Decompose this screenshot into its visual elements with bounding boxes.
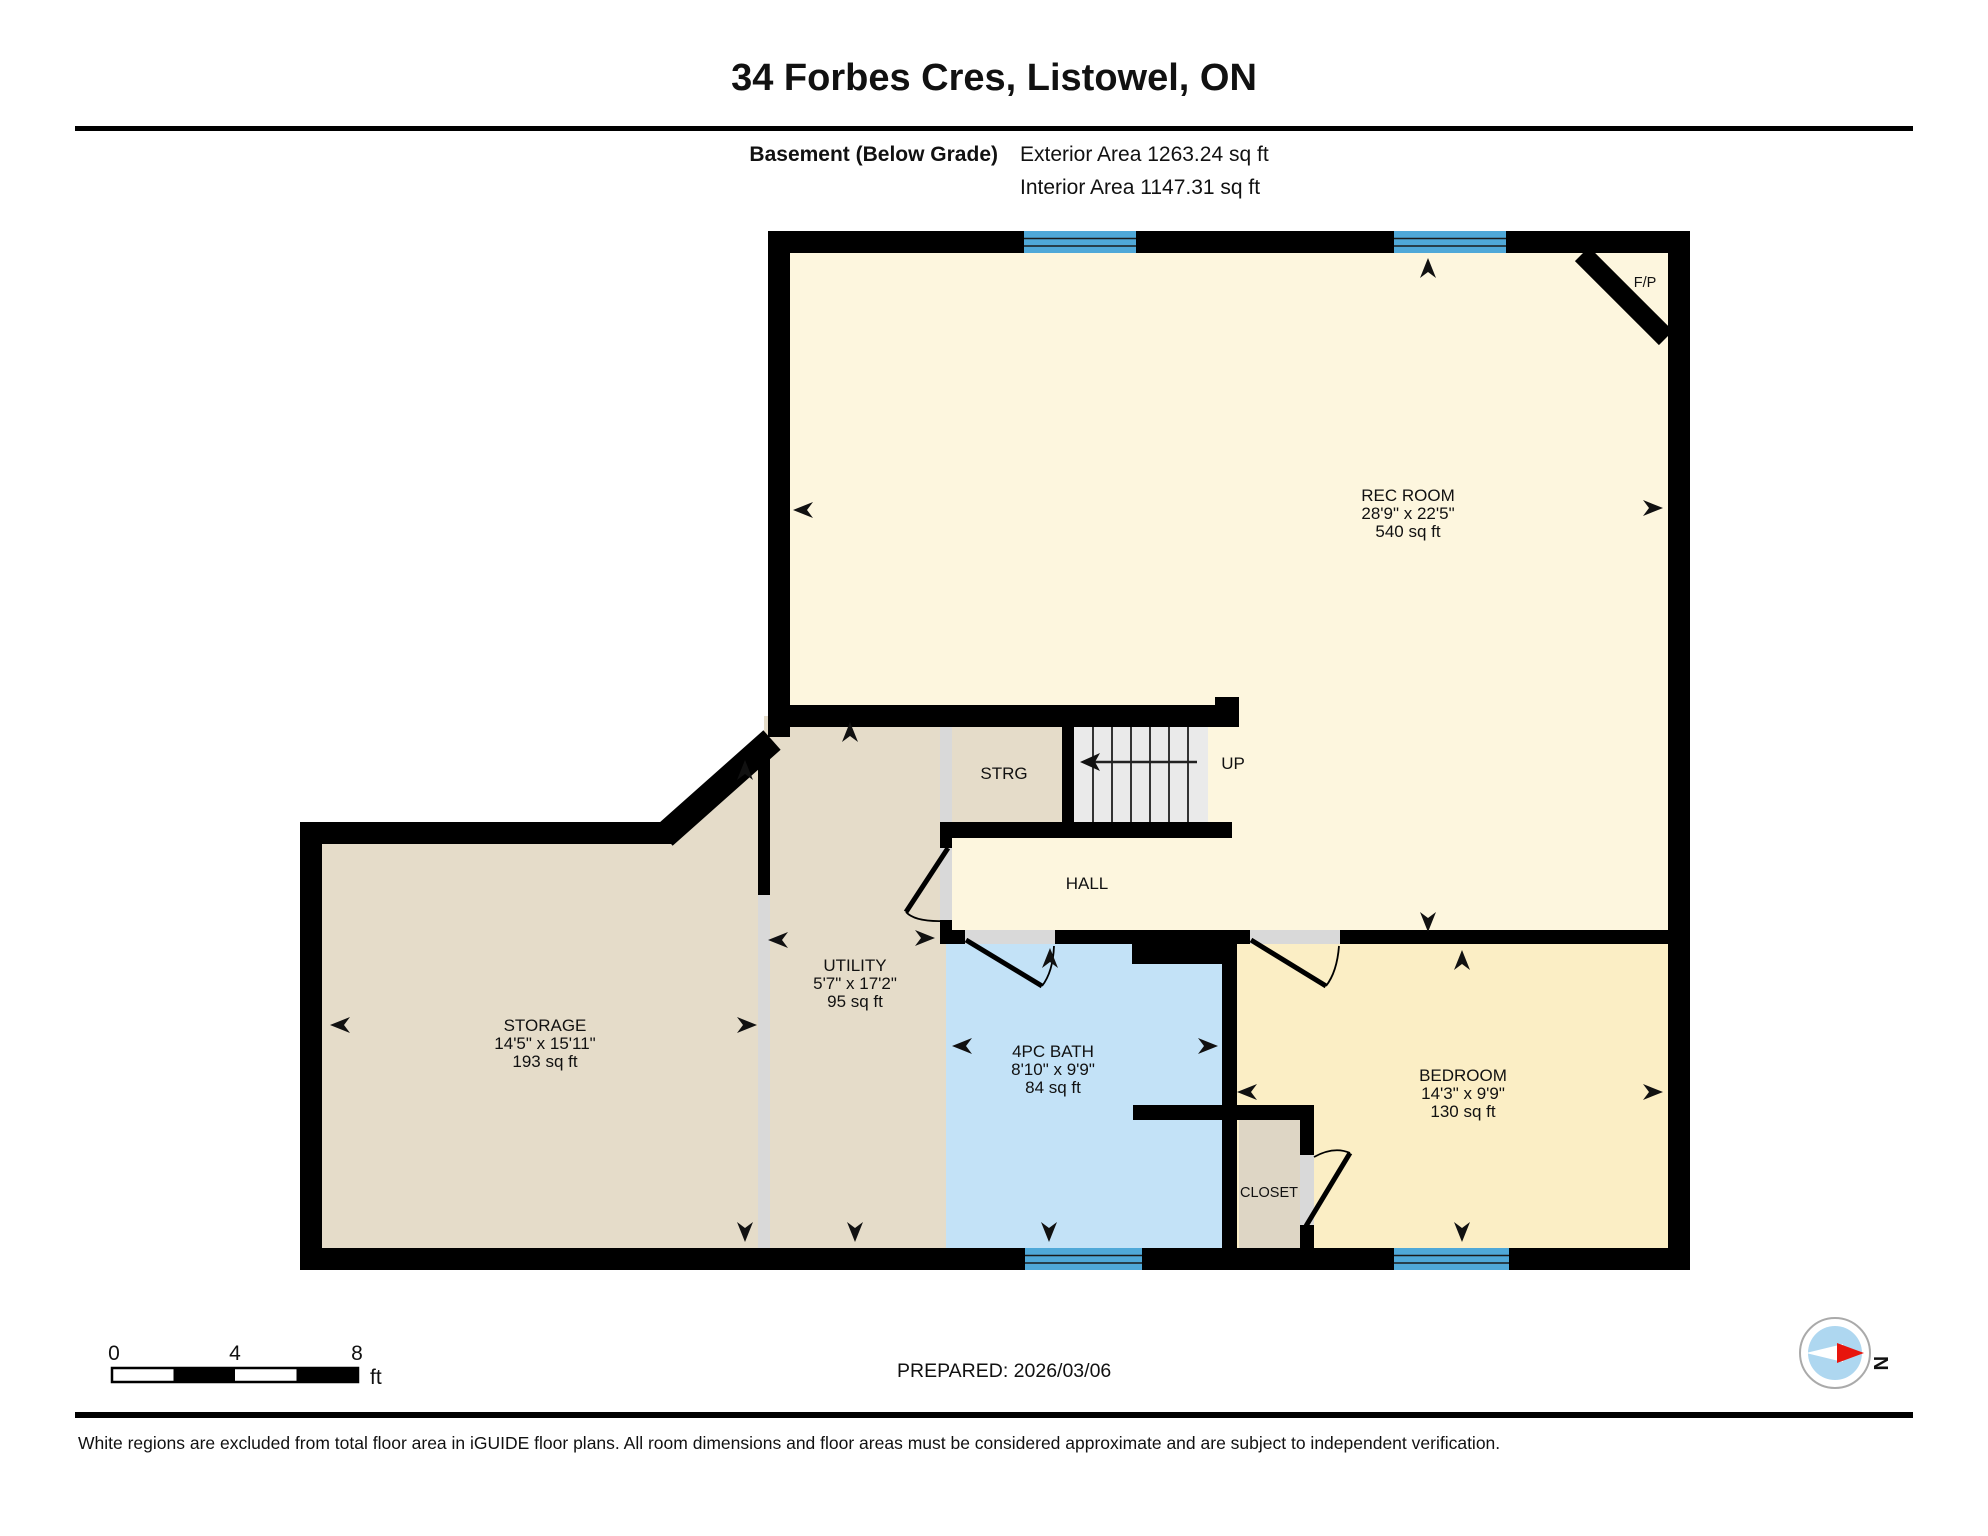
scale-segment [174,1368,236,1382]
prepared-date: PREPARED: 2026/03/06 [897,1360,1111,1382]
bath-name: 4PC BATH [1012,1042,1094,1061]
wall-stairs-bottom [940,822,1232,838]
fireplace-label: F/P [1634,275,1657,291]
compass-north-label: N [1869,1356,1891,1370]
wall-stair-stub [1215,697,1239,727]
wall-right [1668,231,1690,1270]
compass: N [1800,1318,1891,1388]
scale-segment [297,1368,359,1382]
exterior-area-label: Exterior Area 1263.24 sq ft [1020,143,1269,166]
wall-rec-left [768,231,790,737]
scale-bar: 0 4 8 ft [108,1342,382,1389]
rec-room-area: 540 sq ft [1375,522,1440,541]
storage-name: STORAGE [504,1016,587,1035]
footer: White regions are excluded from total fl… [75,1412,1913,1453]
window-bottom-1 [1025,1248,1142,1270]
storage-dimensions: 14'5" x 15'11" [494,1034,595,1053]
floor-plan-page: 34 Forbes Cres, Listowel, ON Basement (B… [0,0,1988,1536]
bedroom-area: 130 sq ft [1430,1102,1495,1121]
closet-floor [1239,1118,1301,1250]
opening-bath-door [965,930,1055,944]
rec-room-dimensions: 28'9" x 22'5" [1361,504,1454,523]
window-top-2 [1394,231,1506,253]
window-bottom-2 [1394,1248,1509,1270]
utility-dimensions: 5'7" x 17'2" [813,974,897,993]
bath-dimensions: 8'10" x 9'9" [1011,1060,1095,1079]
utility-area: 95 sq ft [827,992,883,1011]
opening-strg [940,727,952,822]
window-top-1 [1024,231,1136,253]
wall-bath-bedroom [1222,944,1237,1248]
storage-area: 193 sq ft [512,1052,577,1071]
wall-storage-top [300,822,672,844]
bedroom-name: BEDROOM [1419,1066,1507,1085]
scale-unit: ft [370,1366,382,1389]
closet-name: CLOSET [1240,1185,1298,1201]
bedroom-dimensions: 14'3" x 9'9" [1421,1084,1505,1103]
opening-bedroom-door [1250,930,1340,944]
scale-tick-8: 8 [351,1342,363,1365]
scale-tick-4: 4 [229,1342,241,1365]
header: 34 Forbes Cres, Listowel, ON Basement (B… [75,57,1913,199]
disclaimer-text: White regions are excluded from total fl… [78,1433,1500,1453]
bath-area: 84 sq ft [1025,1078,1081,1097]
wall-mid-top [768,705,1215,727]
opening-storage-utility [758,895,770,1248]
wall-strg-stairs [1062,716,1074,832]
floor-plan-canvas: 34 Forbes Cres, Listowel, ON Basement (B… [0,0,1988,1536]
wall-left [300,822,322,1270]
stairs-up-label: UP [1221,754,1245,773]
wall-bath-stub [1132,944,1222,964]
utility-name: UTILITY [823,956,886,975]
scale-tick-0: 0 [108,1342,120,1365]
page-title: 34 Forbes Cres, Listowel, ON [731,57,1257,99]
footer-divider [75,1412,1913,1418]
hall-name: HALL [1066,874,1109,893]
interior-area-label: Interior Area 1147.31 sq ft [1020,176,1260,199]
wall-toilet-closet-top [1133,1105,1314,1120]
bath-floor [946,932,1234,1252]
strg-name: STRG [980,764,1027,783]
header-divider [75,126,1913,131]
rec-room-name: REC ROOM [1361,486,1455,505]
wall-top [768,231,1690,253]
floor-label: Basement (Below Grade) [749,143,998,166]
